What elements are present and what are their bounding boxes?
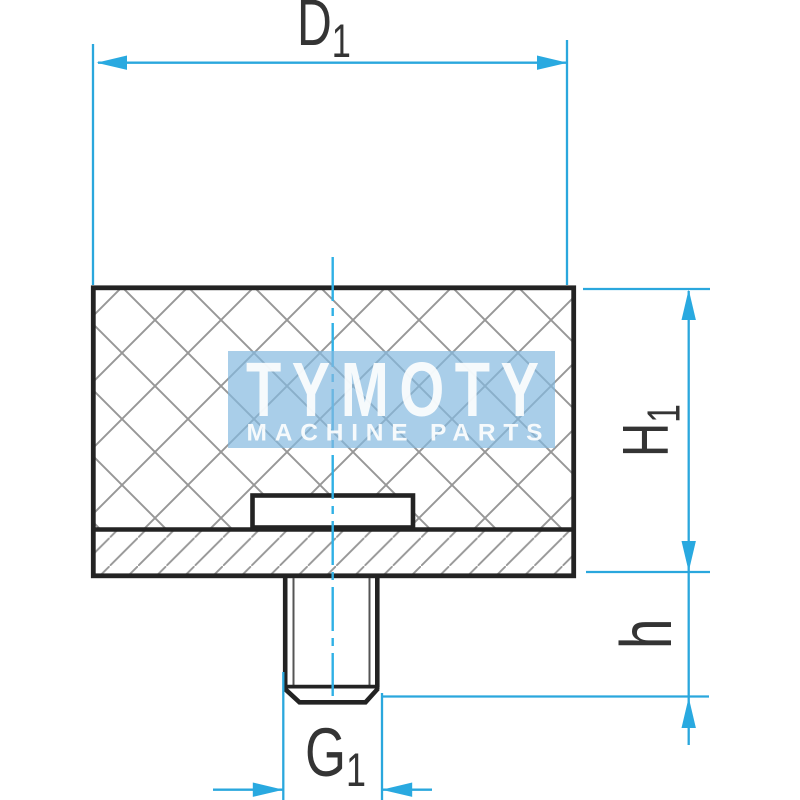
- svg-text:h: h: [606, 619, 687, 649]
- svg-text:MACHINE PARTS: MACHINE PARTS: [247, 420, 551, 447]
